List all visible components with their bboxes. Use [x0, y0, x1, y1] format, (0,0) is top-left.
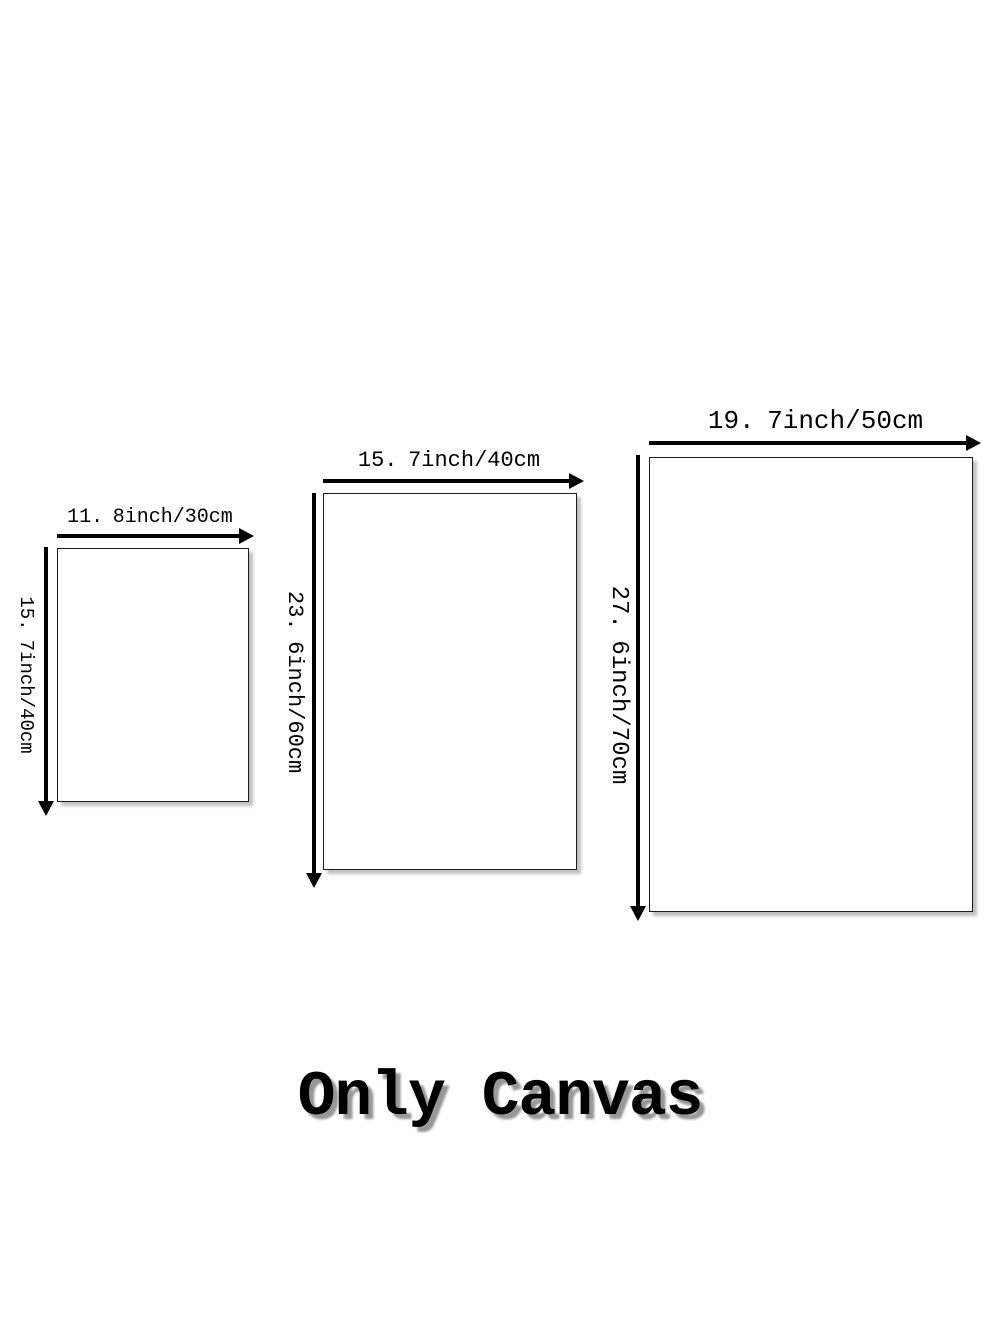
canvas-rectangle	[57, 548, 249, 802]
width-dimension-label: 19.7inch/50cm	[649, 406, 982, 436]
height-arrow-line	[44, 547, 48, 801]
canvas-rectangle	[649, 457, 973, 912]
arrow-down-icon	[38, 801, 54, 816]
height-dimension-label: 23.6inch/60cm	[281, 591, 307, 771]
width-arrow-line	[649, 441, 967, 445]
size-chart-image: 11.8inch/30cm 15.7inch/40cm 15.7inch/40c…	[0, 0, 1000, 1333]
width-dimension-label: 11.8inch/30cm	[47, 506, 253, 529]
width-dimension-label: 15.7inch/40cm	[318, 448, 580, 473]
height-dimension-label: 27.6inch/70cm	[604, 585, 632, 785]
only-canvas-title: Only Canvas	[0, 1062, 1000, 1133]
arrow-right-icon	[966, 435, 981, 451]
height-arrow-line	[636, 455, 640, 906]
arrow-right-icon	[239, 528, 254, 544]
height-dimension-label: 15.7inch/40cm	[13, 594, 37, 756]
height-arrow-line	[312, 493, 316, 873]
width-arrow-line	[323, 479, 570, 483]
canvas-rectangle	[323, 493, 577, 870]
width-arrow-line	[57, 534, 240, 538]
arrow-down-icon	[630, 906, 646, 921]
arrow-right-icon	[569, 473, 584, 489]
arrow-down-icon	[306, 873, 322, 888]
